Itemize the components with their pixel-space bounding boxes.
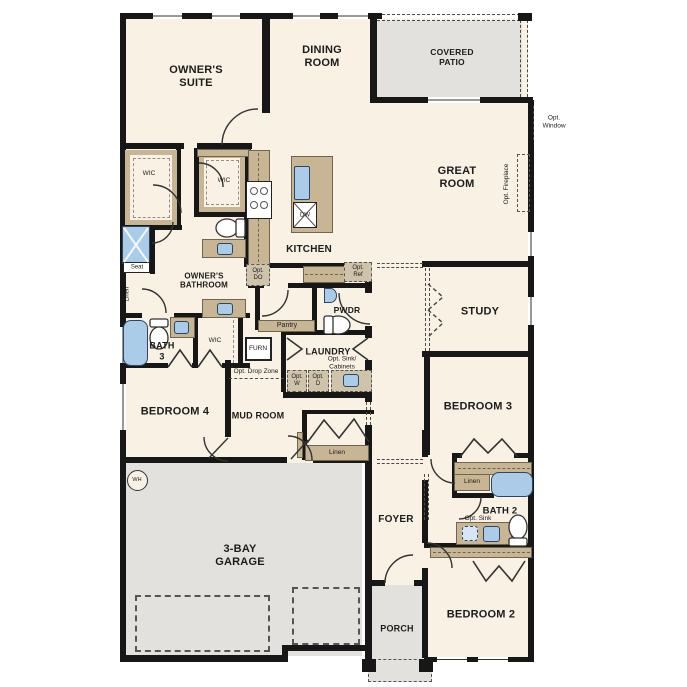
room-label-porch: PORCH	[380, 624, 414, 635]
porch-post	[419, 659, 433, 672]
window	[120, 384, 126, 430]
wall	[422, 430, 428, 457]
sink	[174, 321, 189, 334]
room-label-foyer: FOYER	[378, 514, 413, 526]
window	[478, 657, 508, 662]
door-leaf	[297, 432, 303, 458]
garage-door	[135, 595, 270, 652]
room-label-great-room: GREAT ROOM	[438, 165, 477, 191]
window	[338, 13, 368, 19]
wall	[281, 332, 286, 392]
window	[293, 13, 320, 19]
laundry-sink	[343, 374, 359, 387]
floor-plan: OWNER'S SUITE DINING ROOM COVERED PATIO …	[0, 0, 687, 687]
room-label-bedroom-4: BEDROOM 4	[141, 406, 209, 419]
wall	[150, 222, 155, 274]
note-dw: DW	[300, 212, 310, 219]
cased-opening	[377, 267, 423, 268]
room-label-bedroom-3: BEDROOM 3	[444, 401, 512, 414]
wall	[120, 655, 286, 662]
note-wh: WH	[132, 477, 141, 483]
window	[528, 232, 534, 256]
note-opt-window: Opt. Window	[542, 114, 565, 129]
porch-floor	[372, 585, 422, 660]
note-opt-ref: Opt. Ref	[352, 265, 363, 279]
sink	[217, 303, 233, 315]
study-opt-door-frame	[429, 268, 430, 351]
note-opt-sink: Opt. Sink	[465, 515, 492, 523]
cooktop	[246, 181, 272, 219]
note-pantry: Pantry	[277, 322, 297, 330]
opt-window-mark	[533, 106, 534, 140]
note-linen: Linen	[124, 287, 131, 302]
cased-opening	[377, 463, 423, 464]
wall	[422, 351, 533, 357]
study-opt-door-frame	[425, 268, 426, 351]
wall	[365, 580, 385, 586]
wall	[238, 318, 243, 363]
note-opt-w: Opt. W	[291, 374, 302, 388]
room-label-covered-patio: COVERED PATIO	[430, 47, 473, 67]
cased-opening	[377, 459, 423, 460]
wall	[514, 453, 532, 458]
note-furn: FURN	[249, 345, 267, 353]
wall	[192, 363, 198, 368]
cased-opening	[370, 402, 371, 425]
wall	[365, 326, 372, 338]
window	[437, 657, 467, 662]
garage-door	[292, 587, 360, 645]
pwdr-sink	[324, 288, 337, 303]
cased-opening	[428, 474, 429, 520]
wall	[414, 580, 427, 586]
room-label-wic: WIC	[218, 177, 231, 185]
wall	[282, 645, 288, 662]
wall	[120, 457, 287, 463]
room-label-dining-room: DINING ROOM	[302, 44, 342, 70]
opt-sink-fixture	[462, 526, 478, 541]
note-opt-d: Opt. D	[312, 374, 323, 388]
patio-roof-dash	[377, 14, 530, 15]
note-opt-fireplace: Opt. Fireplace	[503, 164, 511, 205]
opt-drop-zone-line	[229, 378, 284, 379]
room-label-bedroom-2: BEDROOM 2	[447, 609, 515, 622]
wall	[370, 13, 377, 103]
patio-roof-dash	[520, 15, 521, 97]
patio-door	[428, 97, 480, 103]
cased-opening	[377, 263, 423, 264]
room-label-garage: 3-BAY GARAGE	[215, 543, 264, 569]
window	[212, 13, 240, 19]
wic-shelf-line	[233, 320, 234, 363]
note-linen: Linen	[329, 449, 345, 457]
note-opt-drop-zone: Opt. Drop Zone	[234, 368, 279, 376]
wall	[302, 410, 374, 414]
room-label-bath-3: BATH 3	[149, 340, 174, 361]
wall	[194, 212, 252, 217]
room-label-kitchen: KITCHEN	[286, 244, 332, 256]
window	[528, 297, 534, 325]
bathtub	[491, 472, 533, 497]
room-label-owners-bathroom: OWNER'S BATHROOM	[180, 272, 228, 291]
wall	[120, 313, 142, 318]
wall	[262, 13, 270, 113]
room-label-wic: WIC	[143, 170, 156, 178]
island-sink	[294, 166, 310, 200]
wall	[120, 143, 184, 149]
note-opt-sink-cabinets: Opt. Sink/ Cabinets	[328, 355, 357, 370]
cased-opening	[424, 474, 425, 520]
room-label-study: STUDY	[461, 306, 499, 319]
room-label-owners-suite: OWNER'S SUITE	[169, 64, 223, 90]
patio-roof-dash	[527, 15, 528, 97]
shower	[122, 226, 150, 264]
shelf-line	[458, 468, 530, 469]
room-label-pwdr: PWDR	[334, 305, 361, 315]
shelf-line	[433, 552, 530, 553]
note-seat: Seat	[131, 264, 143, 271]
wall	[422, 261, 533, 267]
note-linen: Linen	[464, 478, 480, 486]
corner-post	[518, 13, 532, 21]
counter-line	[305, 274, 343, 275]
room-label-wic: WIC	[209, 337, 222, 345]
closet-shelf	[197, 149, 250, 157]
wall	[225, 360, 231, 437]
opt-fireplace-box	[517, 154, 530, 212]
wall	[452, 493, 494, 498]
sink	[483, 526, 500, 542]
patio-roof-dash	[377, 20, 530, 21]
room-label-mud-room: MUD ROOM	[232, 411, 285, 422]
wall	[283, 392, 372, 398]
window	[153, 13, 182, 19]
wall	[282, 645, 366, 651]
wic-shelf-line	[133, 158, 170, 218]
sink	[217, 243, 233, 255]
note-opt-do: Opt. DO	[252, 268, 263, 282]
bathtub	[123, 320, 148, 366]
cased-opening	[366, 402, 367, 425]
